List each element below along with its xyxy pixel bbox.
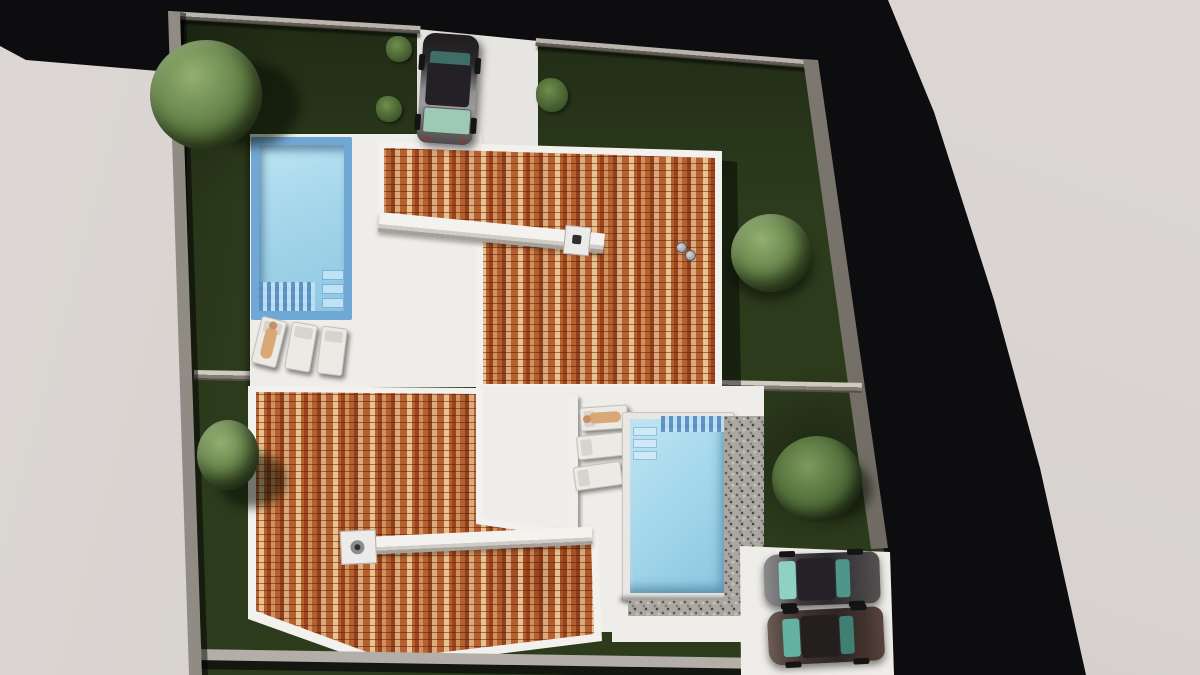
pool-2-ladder [633, 427, 657, 436]
pool-1 [251, 137, 352, 320]
car-roof [800, 614, 840, 658]
tree [197, 420, 259, 490]
aerial-architectural-render [0, 0, 1200, 675]
pool-1-ladder [322, 284, 344, 294]
shrub [376, 96, 402, 122]
parked-car-1 [763, 551, 881, 607]
car-windshield [422, 106, 472, 135]
pool-1-ladder [322, 298, 344, 308]
car-light [422, 136, 430, 140]
car-light [458, 139, 466, 143]
pool-2-ladder [633, 439, 657, 448]
driveway-car [416, 32, 480, 146]
tree [731, 214, 811, 292]
roof-vent [685, 250, 696, 261]
person-on-lounger [259, 326, 278, 360]
person-on-lounger [589, 411, 622, 424]
pool-2 [622, 412, 734, 601]
pool-1-ladder [322, 270, 344, 280]
parked-car-2 [767, 606, 886, 666]
car-windshield [782, 618, 801, 657]
shrub [386, 36, 412, 62]
pool-2-ladder [633, 451, 657, 460]
car-rear-window [835, 559, 850, 597]
sun-lounger [576, 432, 626, 461]
house2-chimney [340, 529, 378, 565]
privacy-wall [567, 396, 578, 528]
house1-chimney [563, 225, 592, 256]
car-roof [796, 558, 835, 601]
pool-1-steps [259, 282, 315, 311]
tree [150, 40, 262, 150]
car-windshield [778, 561, 796, 600]
car-roof [425, 63, 472, 108]
shrub [536, 78, 568, 112]
car-rear-window [839, 616, 855, 655]
pool-2-steps [661, 416, 725, 432]
bush [772, 436, 862, 522]
